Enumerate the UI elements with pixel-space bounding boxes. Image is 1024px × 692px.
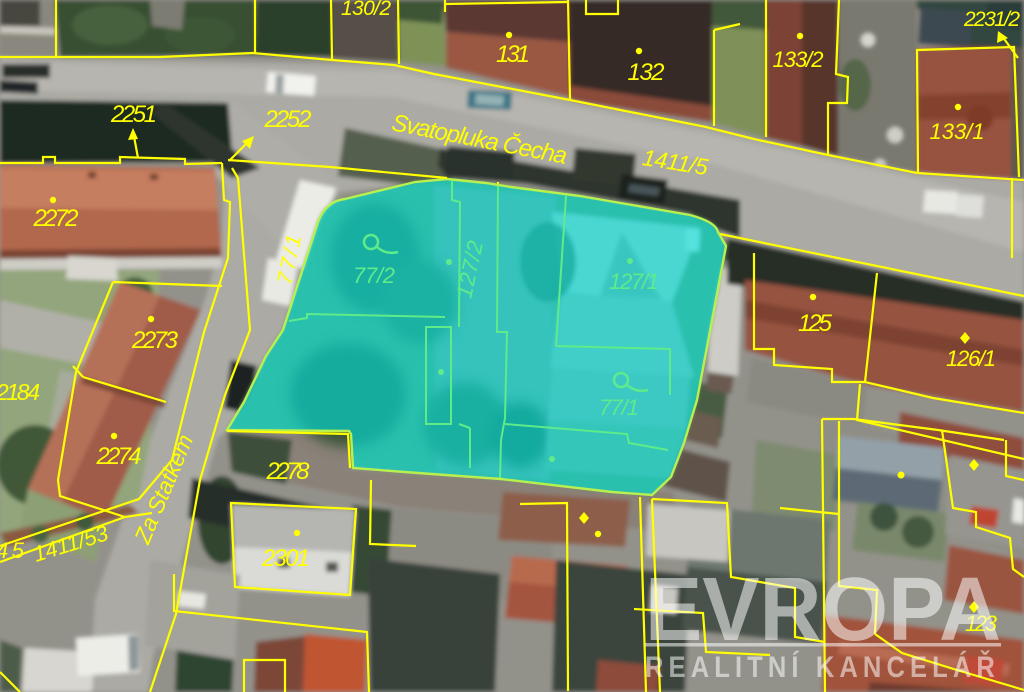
- svg-text:2231/2: 2231/2: [963, 8, 1020, 31]
- svg-text:2272: 2272: [33, 205, 79, 232]
- svg-text:132: 132: [628, 59, 665, 86]
- svg-text:131: 131: [496, 41, 530, 68]
- svg-text:2251: 2251: [110, 101, 157, 128]
- svg-text:133/2: 133/2: [773, 47, 824, 72]
- svg-text:133/1: 133/1: [930, 119, 985, 144]
- svg-text:45: 45: [0, 538, 25, 563]
- svg-text:2184: 2184: [0, 379, 40, 405]
- svg-text:2252: 2252: [264, 106, 312, 133]
- svg-text:2301: 2301: [261, 545, 310, 572]
- svg-text:REALITNÍ KANCELÁŘ: REALITNÍ KANCELÁŘ: [645, 650, 1000, 684]
- svg-text:2273: 2273: [131, 327, 179, 354]
- svg-text:2278: 2278: [266, 458, 311, 485]
- svg-text:125: 125: [798, 310, 833, 337]
- svg-text:126/1: 126/1: [946, 346, 996, 371]
- svg-text:2274: 2274: [96, 443, 142, 470]
- svg-text:130/2: 130/2: [341, 0, 391, 20]
